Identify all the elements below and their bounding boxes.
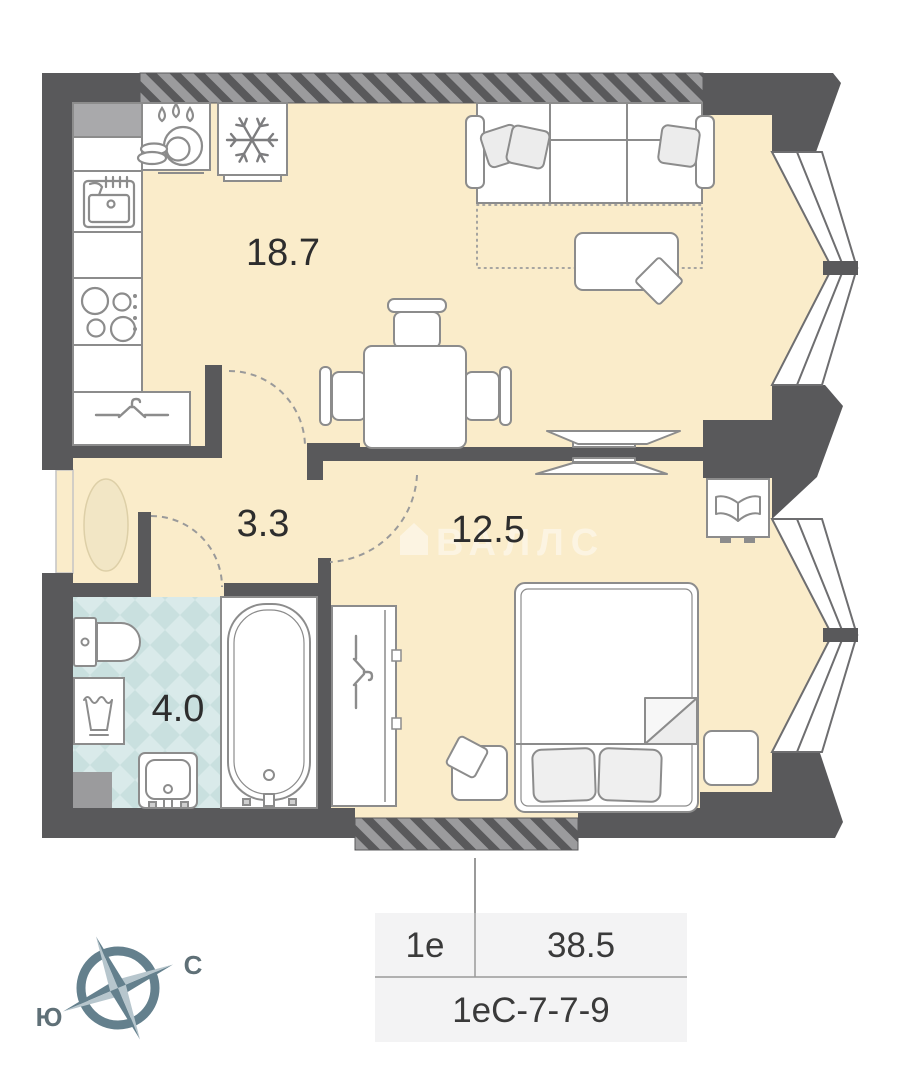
room-label-kitchen-living: 18.7	[246, 232, 320, 274]
compass-south-label: Ю	[36, 1002, 63, 1032]
wall-hall-bedroom-stub	[318, 558, 331, 597]
nightstand-left	[445, 735, 507, 800]
apartment-total-area: 38.5	[547, 926, 615, 965]
chair-top	[394, 312, 440, 348]
wall-bath-top-left	[73, 583, 138, 597]
wall-bottom-left	[42, 808, 355, 838]
wall-left-upper	[42, 73, 73, 470]
dining-table	[364, 346, 466, 448]
wall-closet-bottom	[73, 446, 222, 458]
wall-bottom-hatched	[355, 818, 578, 850]
compass-icon: С Ю	[36, 937, 203, 1040]
duct-shaft	[73, 772, 112, 808]
wall-kitchen-stub	[205, 365, 222, 448]
compass-north-label: С	[184, 950, 203, 980]
wall-left-lower	[42, 573, 73, 838]
room-label-bedroom: 12.5	[451, 509, 525, 551]
bathroom-sink	[139, 753, 197, 808]
bathtub	[221, 597, 317, 808]
info-table: 1е 38.5 1еС-7-7-9	[375, 858, 687, 1042]
hall-rug	[84, 479, 128, 571]
sofa	[466, 103, 714, 203]
bookshelf	[707, 479, 769, 543]
apartment-code: 1еС-7-7-9	[452, 991, 610, 1030]
wall-bath-top-right	[224, 583, 331, 597]
wall-niche	[56, 470, 73, 573]
hall-closet	[73, 392, 190, 445]
apartment-type: 1е	[406, 926, 445, 965]
toilet	[74, 618, 140, 666]
bed	[515, 583, 698, 812]
room-label-hallway: 3.3	[237, 503, 290, 545]
chair-left	[332, 372, 366, 420]
floor-plan: ВАЛЛС 18.7 3.3 12.5 4.0 С Ю 1е 38.5 1еС-…	[0, 0, 922, 1080]
wall-bath-stub	[138, 512, 151, 597]
floor-plan-page: ВАЛЛС 18.7 3.3 12.5 4.0 С Ю 1е 38.5 1еС-…	[0, 0, 922, 1080]
room-label-bathroom: 4.0	[152, 688, 205, 730]
chair-right	[465, 372, 499, 420]
nightstand-right	[704, 731, 758, 785]
wall-bath-right	[318, 597, 331, 808]
wardrobe	[332, 606, 401, 806]
wall-top-hatched	[140, 73, 703, 103]
washing-machine	[74, 678, 124, 744]
